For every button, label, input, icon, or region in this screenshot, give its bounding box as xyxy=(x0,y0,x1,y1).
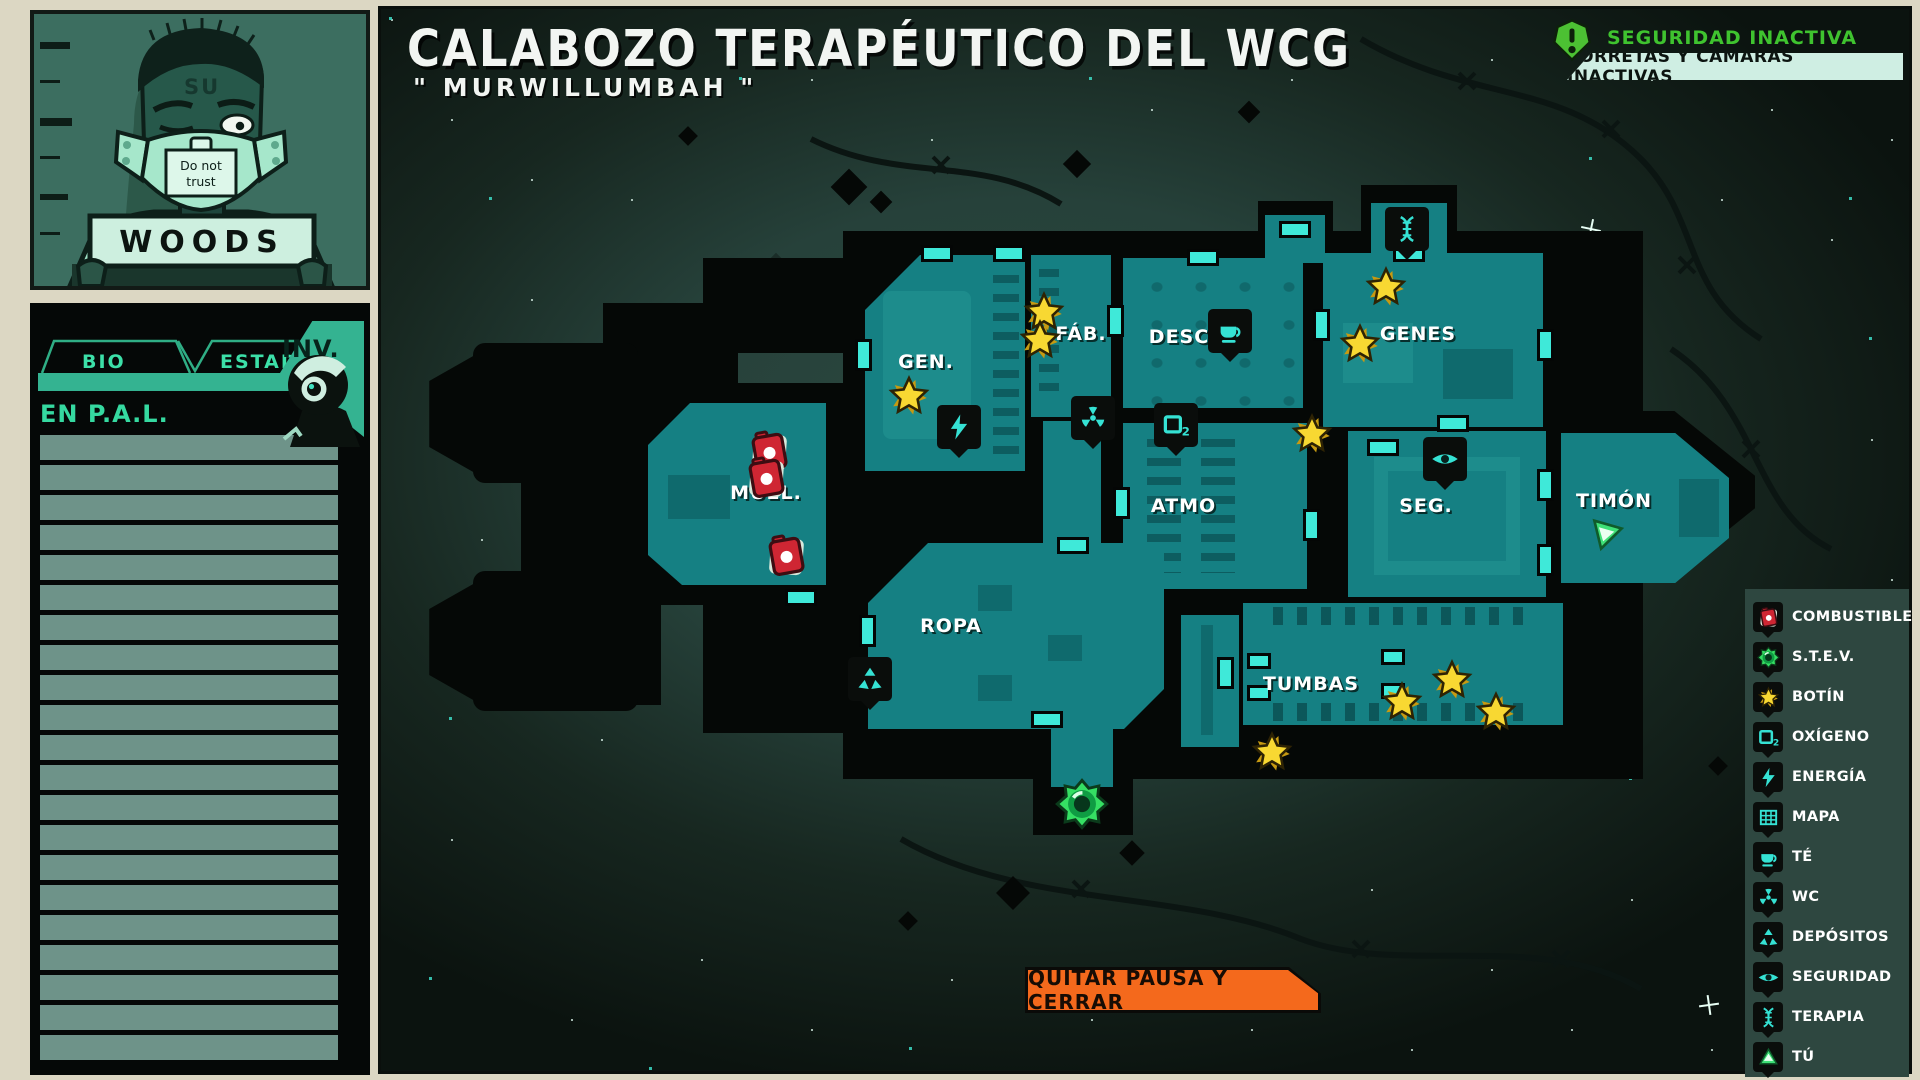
eye-icon xyxy=(1753,962,1783,992)
mugshot-portrait: SU Do not trust WOODS xyxy=(34,14,366,286)
loot-star-icon xyxy=(1364,265,1408,309)
mugshot-name-label: WOODS xyxy=(119,225,285,260)
loot-star-icon xyxy=(1290,412,1334,456)
legend-item-energia: ENERGÍA xyxy=(1753,757,1909,797)
pal-robot-icon xyxy=(268,343,364,447)
mask-sign-line2: trust xyxy=(186,174,215,189)
oxygen-icon xyxy=(1154,403,1198,447)
door-marker xyxy=(1303,509,1320,541)
tea-icon xyxy=(1208,309,1252,353)
ship-map-canvas: GEN. FÁB. DESC GENES ATMO SEG. TIMÓN MUE… xyxy=(378,6,1912,1074)
map-legend: COMBUSTIBLE S.T.E.V. BOTÍN OXÍGENO ENERG… xyxy=(1745,589,1909,1077)
door-marker xyxy=(1279,221,1311,238)
room-label-gen: GEN. xyxy=(886,351,966,373)
fuel-icon xyxy=(762,532,810,580)
dna-icon xyxy=(1753,1002,1783,1032)
grid-icon xyxy=(1753,802,1783,832)
player-icon xyxy=(1753,1042,1783,1072)
loot-star-icon xyxy=(1018,318,1062,362)
legend-item-seguridad: SEGURIDAD xyxy=(1753,957,1909,997)
engine-silhouette xyxy=(473,571,638,711)
legend-item-te: TÉ xyxy=(1753,837,1909,877)
tab-accent-bar xyxy=(38,373,284,391)
warning-icon xyxy=(1549,17,1595,63)
radiation-icon xyxy=(1753,882,1783,912)
room-label-tumbas: TUMBAS xyxy=(1251,673,1371,695)
inventory-heading: EN P.A.L. xyxy=(40,400,169,428)
door-marker xyxy=(1537,329,1554,361)
door-marker xyxy=(1537,469,1554,501)
door-marker xyxy=(1537,544,1554,576)
inventory-list[interactable] xyxy=(40,435,338,1064)
door-marker xyxy=(993,245,1025,262)
stev-icon xyxy=(1055,777,1109,831)
room-label-seg: SEG. xyxy=(1371,495,1481,517)
room-label-atmo: ATMO xyxy=(1126,495,1241,517)
mugshot-card: SU Do not trust WOODS xyxy=(30,10,370,290)
forehead-tattoo: SU xyxy=(184,75,220,99)
wc-radiation-icon xyxy=(1071,396,1115,440)
deposits-recycle-icon xyxy=(848,657,892,701)
legend-item-depositos: DEPÓSITOS xyxy=(1753,917,1909,957)
unpause-close-button[interactable]: QUITAR PAUSA Y CERRAR xyxy=(1025,967,1321,1013)
o2-icon xyxy=(1753,722,1783,752)
fuel-icon xyxy=(742,454,790,502)
door-marker xyxy=(1187,249,1219,266)
legend-item-botin: BOTÍN xyxy=(1753,677,1909,717)
door-marker xyxy=(1031,711,1063,728)
door-marker xyxy=(921,245,953,262)
loot-star-icon xyxy=(1338,322,1382,366)
recycle-icon xyxy=(1753,922,1783,952)
map-title: CALABOZO TERAPÉUTICO DEL WCG xyxy=(407,19,1351,78)
loot-star-icon xyxy=(1474,690,1518,734)
room-label-ropa: ROPA xyxy=(901,615,1001,637)
legend-item-mapa: MAPA xyxy=(1753,797,1909,837)
security-detail: TORRETAS Y CÁMARAS INACTIVAS xyxy=(1567,53,1903,80)
legend-item-oxigeno: OXÍGENO xyxy=(1753,717,1909,757)
door-marker xyxy=(1057,537,1089,554)
bolt-icon xyxy=(1753,762,1783,792)
tab-bio[interactable]: BIO xyxy=(82,351,126,373)
room-label-helm: TIMÓN xyxy=(1559,490,1669,512)
door-marker xyxy=(1217,657,1234,689)
energy-icon xyxy=(937,405,981,449)
legend-item-terapia: TERAPIA xyxy=(1753,997,1909,1037)
door-marker xyxy=(855,339,872,371)
door-marker xyxy=(1313,309,1330,341)
door-marker xyxy=(785,589,817,606)
door-marker xyxy=(859,615,876,647)
loot-star-icon xyxy=(1430,658,1474,702)
stev-icon xyxy=(1753,642,1783,672)
door-marker xyxy=(1367,439,1399,456)
legend-item-wc: WC xyxy=(1753,877,1909,917)
security-eye-icon xyxy=(1423,437,1467,481)
legend-item-tu: TÚ xyxy=(1753,1037,1909,1077)
map-subtitle: " MURWILLUMBAH " xyxy=(413,73,757,102)
tea-icon xyxy=(1753,842,1783,872)
legend-item-combustible: COMBUSTIBLE xyxy=(1753,597,1909,637)
mask-sign-line1: Do not xyxy=(180,158,222,173)
fuel-icon xyxy=(1753,602,1783,632)
engine-silhouette xyxy=(473,343,638,483)
door-marker xyxy=(1247,653,1271,669)
door-marker xyxy=(1381,649,1405,665)
legend-item-stev: S.T.E.V. xyxy=(1753,637,1909,677)
star-icon xyxy=(1753,682,1783,712)
character-info-panel: BIO ESTADO INV. EN P.A.L. xyxy=(30,303,370,1075)
loot-star-icon xyxy=(1250,730,1294,774)
security-status: SEGURIDAD INACTIVA xyxy=(1607,27,1857,49)
door-marker xyxy=(1437,415,1469,432)
loot-star-icon xyxy=(887,374,931,418)
loot-star-icon xyxy=(1380,680,1424,724)
therapy-dna-icon xyxy=(1385,207,1429,251)
